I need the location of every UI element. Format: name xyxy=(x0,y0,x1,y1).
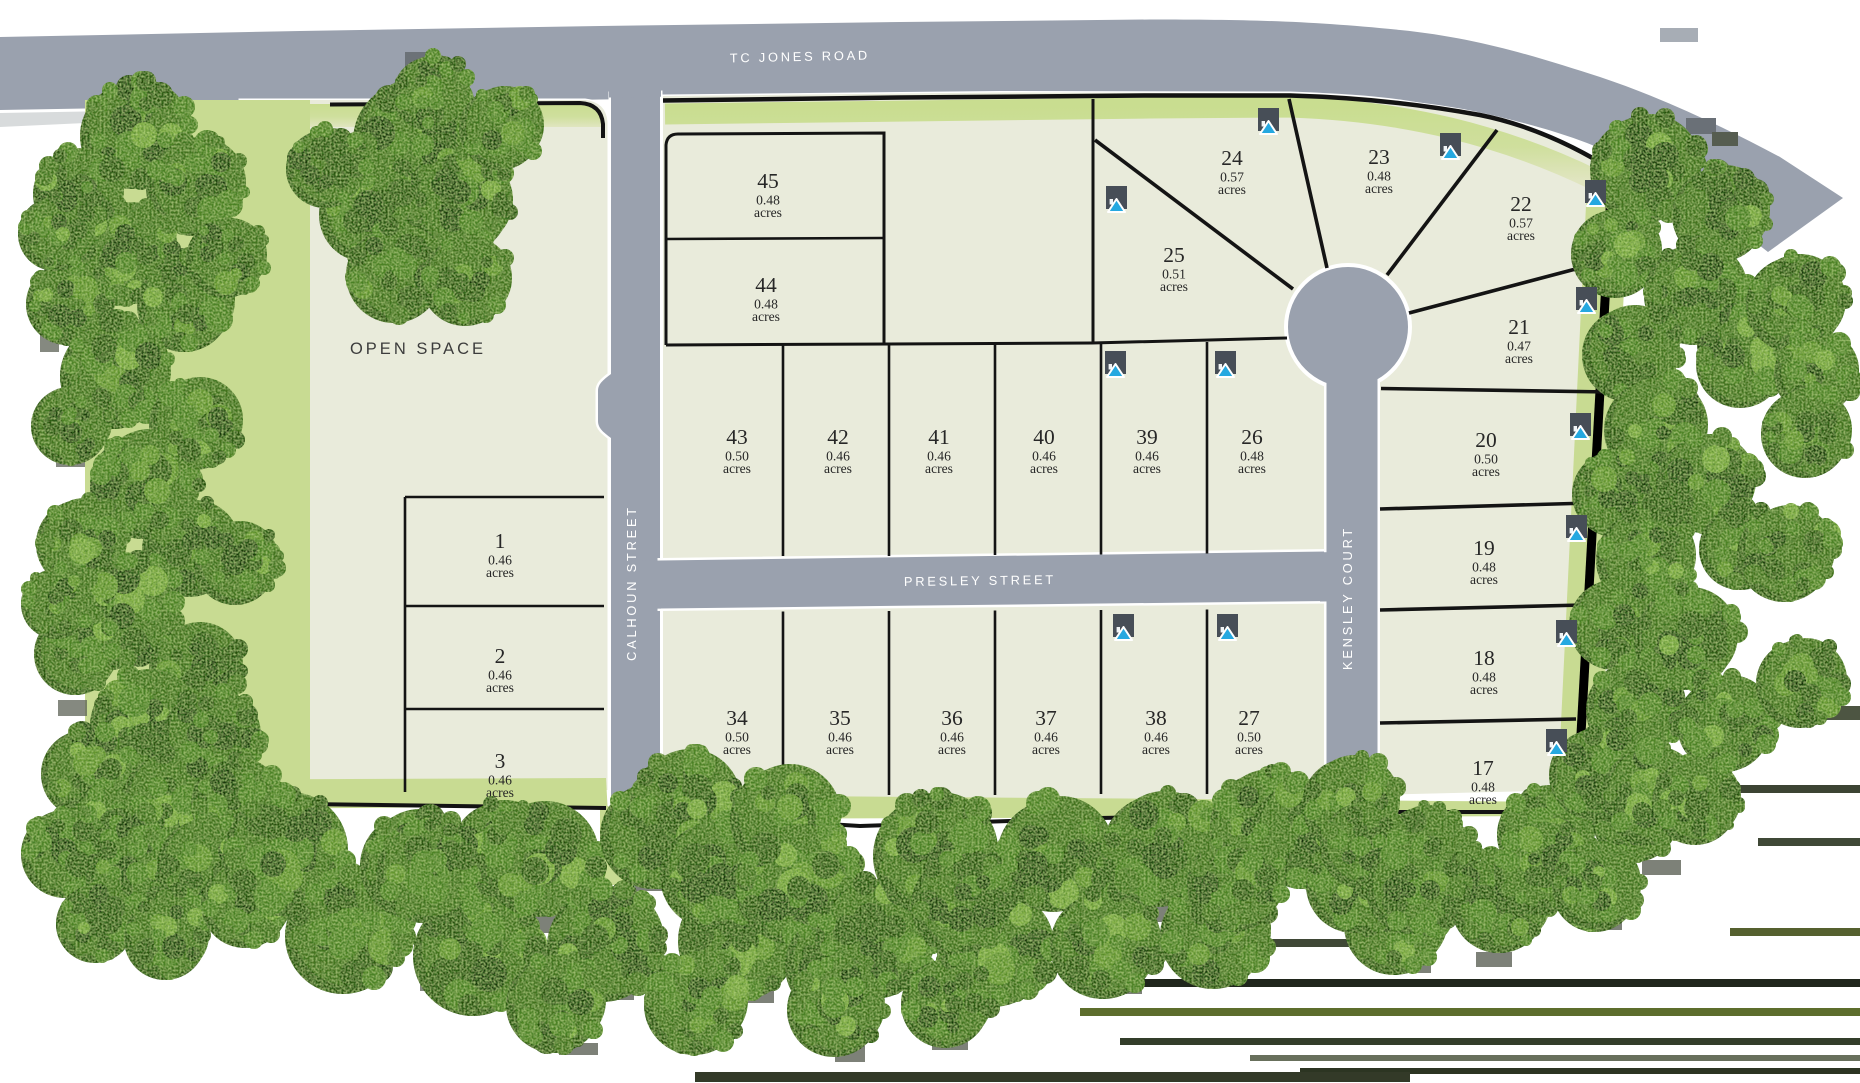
svg-text:acres: acres xyxy=(1133,461,1161,476)
svg-text:acres: acres xyxy=(1470,682,1498,697)
svg-text:26: 26 xyxy=(1241,425,1263,449)
svg-text:40: 40 xyxy=(1033,425,1055,449)
svg-text:PRESLEY STREET: PRESLEY STREET xyxy=(904,572,1056,589)
svg-text:acres: acres xyxy=(1469,792,1497,807)
svg-text:KENSLEY COURT: KENSLEY COURT xyxy=(1340,526,1355,670)
svg-text:25: 25 xyxy=(1163,243,1185,267)
svg-text:acres: acres xyxy=(1030,461,1058,476)
svg-text:1: 1 xyxy=(495,529,506,553)
svg-text:acres: acres xyxy=(1470,572,1498,587)
svg-text:27: 27 xyxy=(1238,706,1260,730)
svg-text:acres: acres xyxy=(824,461,852,476)
svg-text:22: 22 xyxy=(1510,192,1532,216)
svg-text:acres: acres xyxy=(1472,464,1500,479)
svg-text:acres: acres xyxy=(1218,182,1246,197)
svg-text:18: 18 xyxy=(1473,646,1495,670)
svg-text:38: 38 xyxy=(1145,706,1167,730)
svg-text:acres: acres xyxy=(486,680,514,695)
svg-text:20: 20 xyxy=(1475,428,1497,452)
svg-text:acres: acres xyxy=(1238,461,1266,476)
svg-text:acres: acres xyxy=(754,205,782,220)
svg-text:36: 36 xyxy=(941,706,963,730)
svg-text:44: 44 xyxy=(755,273,777,297)
svg-text:acres: acres xyxy=(723,742,751,757)
svg-text:OPEN SPACE: OPEN SPACE xyxy=(350,340,486,358)
svg-text:24: 24 xyxy=(1221,146,1243,170)
svg-text:35: 35 xyxy=(829,706,851,730)
svg-text:acres: acres xyxy=(486,565,514,580)
svg-text:acres: acres xyxy=(752,309,780,324)
svg-text:acres: acres xyxy=(1032,742,1060,757)
svg-text:17: 17 xyxy=(1472,756,1494,780)
svg-text:acres: acres xyxy=(1507,228,1535,243)
svg-text:21: 21 xyxy=(1508,315,1530,339)
svg-text:37: 37 xyxy=(1035,706,1057,730)
svg-text:acres: acres xyxy=(826,742,854,757)
svg-text:43: 43 xyxy=(726,425,748,449)
svg-text:acres: acres xyxy=(1235,742,1263,757)
svg-text:TC JONES ROAD: TC JONES ROAD xyxy=(730,48,871,66)
svg-text:acres: acres xyxy=(1142,742,1170,757)
svg-text:acres: acres xyxy=(938,742,966,757)
svg-text:3: 3 xyxy=(495,749,506,773)
svg-text:acres: acres xyxy=(1160,279,1188,294)
svg-text:23: 23 xyxy=(1368,145,1390,169)
svg-text:39: 39 xyxy=(1136,425,1158,449)
svg-text:45: 45 xyxy=(757,169,779,193)
svg-text:acres: acres xyxy=(723,461,751,476)
svg-text:34: 34 xyxy=(726,706,748,730)
svg-text:CALHOUN STREET: CALHOUN STREET xyxy=(624,505,639,661)
svg-text:2: 2 xyxy=(495,644,506,668)
svg-text:42: 42 xyxy=(827,425,849,449)
svg-text:acres: acres xyxy=(925,461,953,476)
svg-text:19: 19 xyxy=(1473,536,1495,560)
svg-text:acres: acres xyxy=(1505,351,1533,366)
svg-text:41: 41 xyxy=(928,425,950,449)
svg-text:acres: acres xyxy=(1365,181,1393,196)
